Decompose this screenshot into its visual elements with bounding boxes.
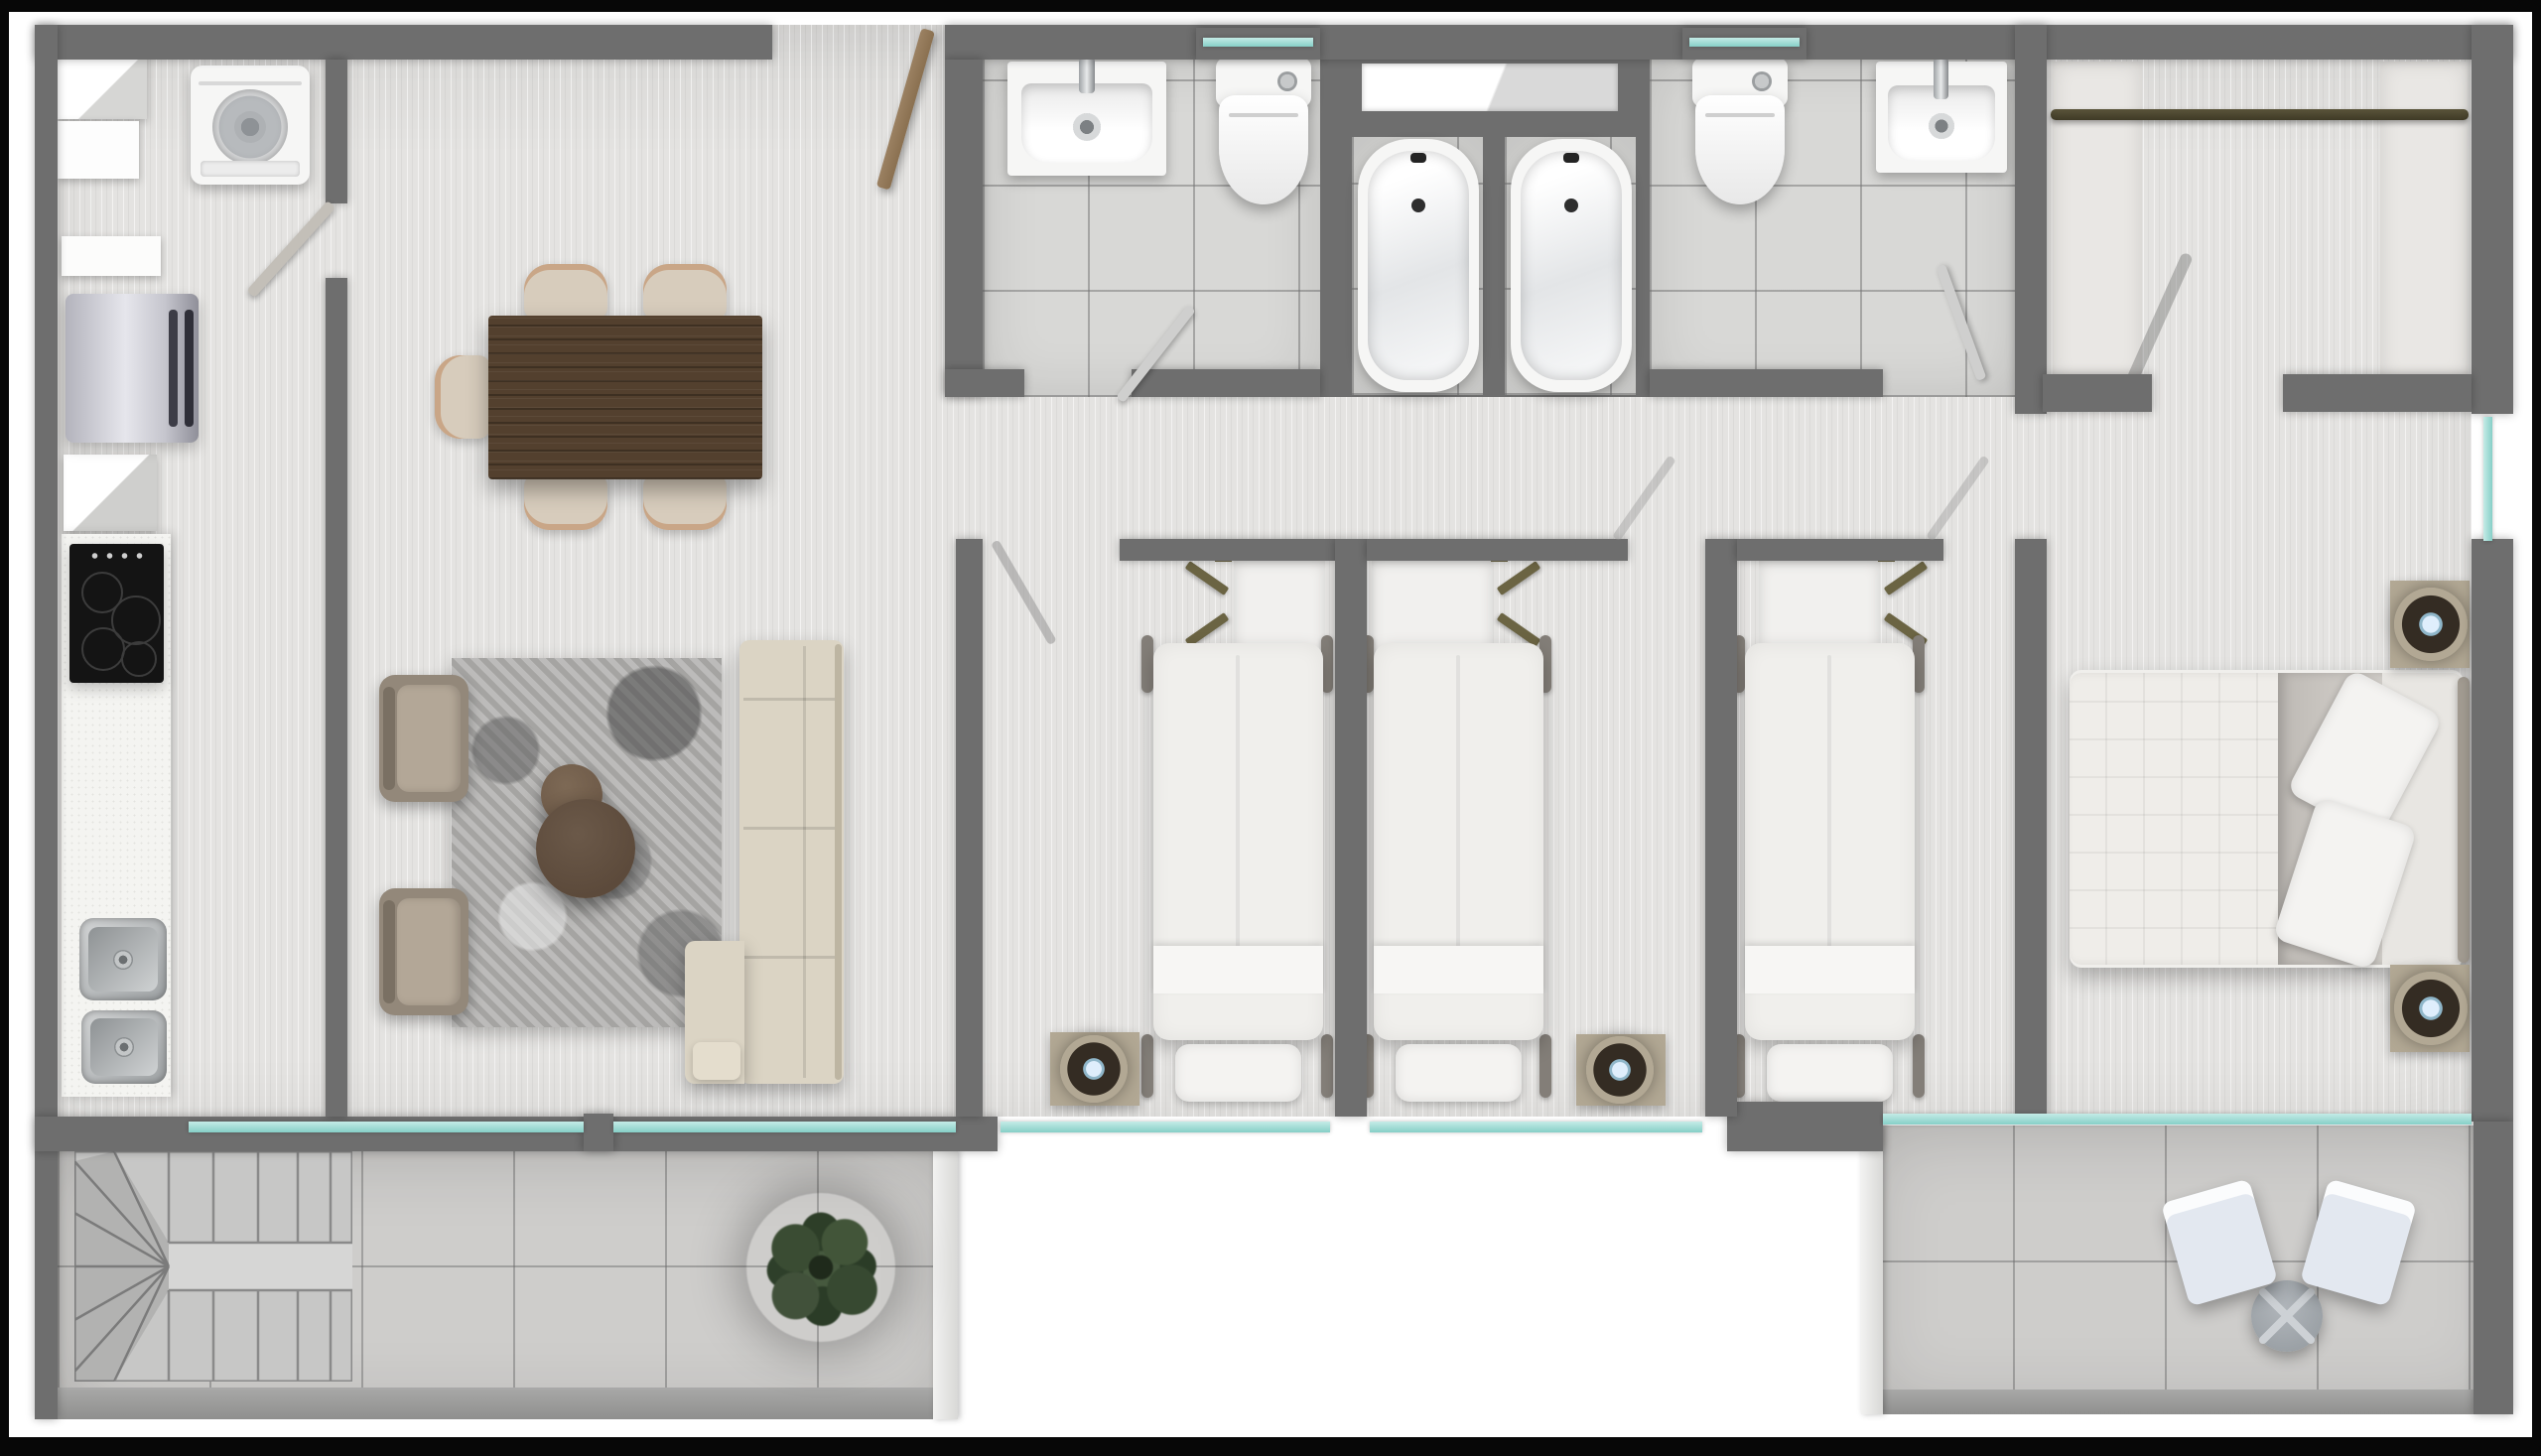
terrace-right-edge-band [1883,1390,2513,1414]
wall [956,539,983,1117]
bed-post [1141,1034,1153,1098]
terrace-right-railing [1861,1125,1883,1414]
dining-chair [524,264,607,320]
washer-lid-line [199,81,302,85]
cooktop-knobs [87,552,149,560]
tub-faucet-icon [1410,153,1426,163]
burner-icon [121,641,157,677]
burner-icon [81,627,125,671]
dining-chair [643,474,727,530]
refrigerator [66,294,199,443]
table-lamp-icon [2394,972,2468,1045]
armchair [379,675,468,802]
wall [326,278,347,1117]
toilet-bowl [1219,95,1308,204]
bathtub [1511,139,1632,392]
duvet-crease [1827,655,1831,953]
flush-button [1277,71,1297,91]
floor-plan [0,0,2541,1456]
coffee-table-large [536,799,635,898]
duvet-crease [1456,655,1460,953]
headboard [2458,677,2470,963]
dining-chair [524,474,607,530]
bed-post [1141,635,1153,693]
tub-inner [1521,151,1622,380]
flush-button [1752,71,1772,91]
single-bed [1374,643,1543,1040]
window-strip [1001,1122,1330,1132]
pillow [1175,1044,1301,1102]
tub-faucet-icon [1563,153,1579,163]
cooktop [69,544,164,683]
wall [2043,374,2152,412]
toilet-window [1689,38,1800,47]
kitchen-window [62,236,161,276]
fridge-handle [169,310,178,427]
bed-post [1913,1034,1925,1098]
closet-rod [2051,109,2469,120]
table-lamp-icon [2394,588,2468,661]
sofa-chaise-cushion [693,1042,740,1080]
table-lamp-icon [1586,1036,1654,1104]
wall [2474,1122,2513,1414]
wall [1727,1102,1883,1151]
window-strip-vertical [2483,417,2492,541]
toilet-window [1203,38,1313,47]
bathtub [1358,139,1479,392]
wall [1705,539,1737,1117]
wall [945,60,983,397]
toilet-bowl [1695,95,1785,204]
potted-plant [746,1193,895,1342]
terrace-left-edge-band [58,1388,958,1419]
armchair-cushion [397,898,461,1005]
frame-border-right [2532,0,2541,1456]
dining-chair [435,355,490,439]
fridge-handle [185,310,194,427]
dining-table [488,316,762,479]
wall [35,25,772,60]
sofa-sectional [739,640,844,1084]
wall [2015,25,2047,414]
wall [1120,539,1335,561]
kitchen-sink-basin-1 [79,918,167,1000]
frame-border-left [0,0,9,1456]
frosted-window [1362,64,1618,111]
window-strip [189,1122,584,1132]
dining-chair [643,264,727,320]
table-lamp-icon [1060,1035,1128,1103]
washer-agitator [234,111,266,143]
sofa-cushion-gap [743,698,835,701]
wall-mullion [584,1114,613,1151]
sofa-frame-edge [835,644,842,1080]
quilt [2070,673,2293,965]
single-bed [1745,643,1915,1040]
wall [945,369,1024,397]
wall [2283,374,2472,412]
tub-drain-icon [1411,199,1425,212]
wall [1132,369,1320,397]
armchair [379,888,468,1015]
sofa-cushion-gap [743,956,835,959]
drain-icon [113,950,133,970]
sofa-seat-line [803,646,806,1078]
bathroom-sink [1007,62,1166,176]
washing-machine [191,66,310,185]
toilet-seat-line [1229,113,1298,117]
frame-border-top [0,0,2541,12]
wall-cabinet-window-1 [58,55,147,119]
wall [326,60,347,203]
pillow [1396,1044,1522,1102]
duvet-fold [1374,946,1543,993]
duvet-crease [1236,655,1240,953]
wall [35,25,58,1419]
single-bed [1153,643,1323,1040]
drain-icon [1929,113,1954,139]
wall [1650,369,1883,397]
bed-post [1321,1034,1333,1098]
kitchen-sink-basin-2 [81,1010,167,1084]
bed-post [1539,1034,1551,1098]
toilet-seat-line [1705,113,1775,117]
faucet-icon [1934,58,1948,99]
drain-icon [1073,113,1101,141]
sofa-cushion-gap [743,827,835,830]
frame-border-bottom [0,1437,2541,1456]
window-strip [1883,1114,2472,1125]
outdoor-table [2251,1280,2323,1352]
drain-icon [114,1037,134,1057]
duvet-fold [1745,946,1915,993]
armchair-back [383,687,395,790]
tub-drain-icon [1564,199,1578,212]
wall [1737,539,1943,561]
staircase [74,1151,352,1382]
armchair-cushion [397,685,461,792]
window-strip [613,1122,956,1132]
faucet-icon [1079,58,1095,93]
pillow [1767,1044,1893,1102]
bathroom-sink [1876,62,2007,173]
duvet-fold [1153,946,1323,993]
tub-inner [1368,151,1469,380]
wall [2472,25,2513,414]
wall [2472,539,2513,1122]
window-strip [1370,1122,1702,1132]
wall-cabinet-window-2 [58,121,139,179]
terrace-left-railing [933,1149,958,1419]
washer-panel [201,161,300,177]
wall [1335,539,1367,1117]
wall [1367,539,1628,561]
wall [2015,539,2047,1117]
corner-cabinet [64,455,157,531]
armchair-back [383,900,395,1003]
